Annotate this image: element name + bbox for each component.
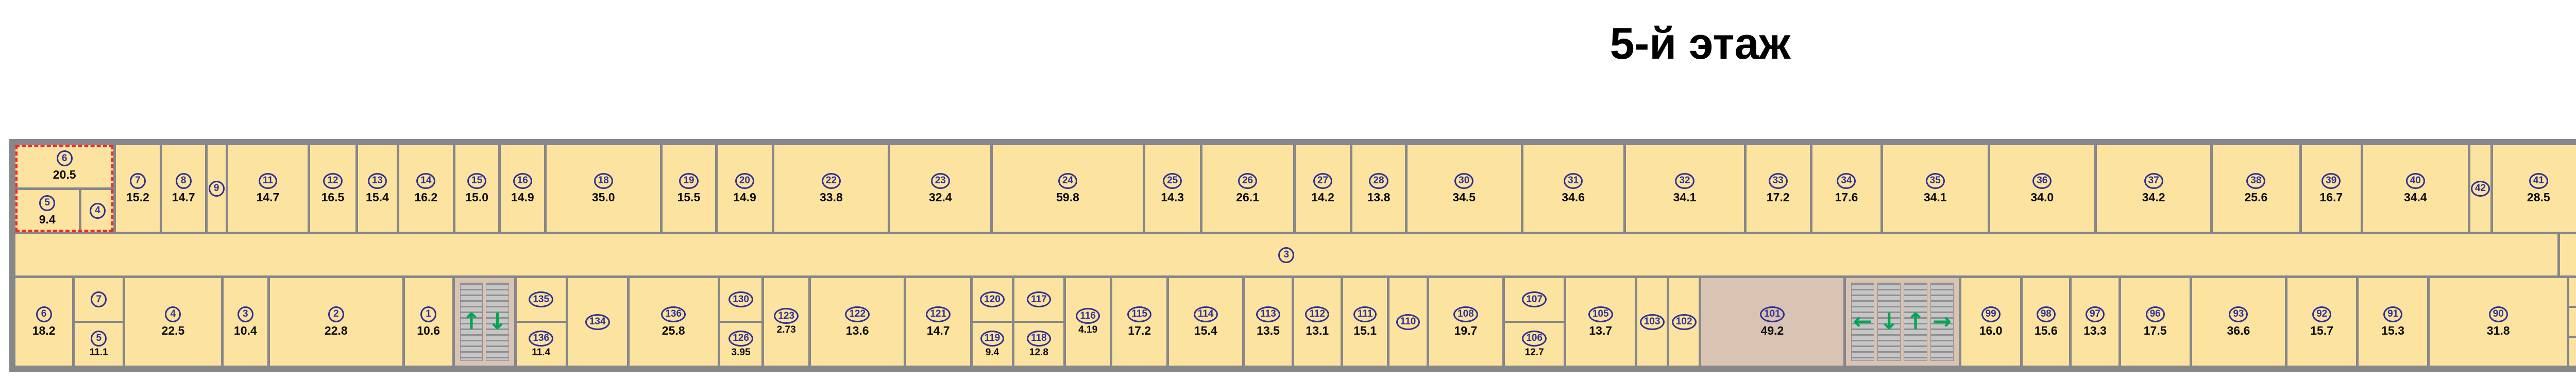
room-118: 11812.8 <box>1014 323 1063 366</box>
room-area: 11.4 <box>532 347 550 358</box>
room-number-circle: 91 <box>2383 306 2402 322</box>
room-number-circle: 15 <box>467 173 486 189</box>
stair-arrow-down-icon: ↓ <box>1879 310 1899 333</box>
room-136: 13625.8 <box>630 278 718 366</box>
room-88: 88 <box>2569 308 2576 336</box>
room-area: 13.6 <box>846 324 869 338</box>
room-number-circle: 98 <box>2037 306 2056 322</box>
apartment-row: 620.5 <box>15 145 113 187</box>
room-31: 3134.6 <box>1523 145 1623 232</box>
stair-arrow-right-icon: → <box>1933 310 1952 333</box>
room-number-circle: 27 <box>1313 173 1332 189</box>
room-area: 14.9 <box>733 191 756 204</box>
room-number-circle: 107 <box>1522 291 1547 307</box>
room-121: 12114.7 <box>906 278 970 366</box>
room-number-circle: 23 <box>931 173 950 189</box>
room-34: 3417.6 <box>1812 145 1880 232</box>
room-area: 34.4 <box>2404 191 2427 204</box>
room-97: 9713.3 <box>2072 278 2118 366</box>
room-area: 13.7 <box>1589 324 1612 338</box>
room-25: 2514.3 <box>1145 145 1200 232</box>
room-number-circle: 136 <box>529 331 553 347</box>
room-block: 13513611.4 <box>517 278 566 366</box>
room-6: 618.2 <box>15 278 72 366</box>
room-40: 4034.4 <box>2363 145 2468 232</box>
room-39: 3916.7 <box>2302 145 2361 232</box>
room-15: 1515.0 <box>455 145 499 232</box>
room-30: 3034.5 <box>1408 145 1521 232</box>
room-number-circle: 4 <box>90 203 106 219</box>
room-3: 310.4 <box>224 278 268 366</box>
room-area: 32.4 <box>929 191 952 204</box>
corridor-band: 322.26813644.7132121.75218.08634.1767516… <box>15 234 2576 275</box>
room-area: 36.6 <box>2227 324 2250 338</box>
room-23: 2332.4 <box>890 145 990 232</box>
room-number-circle: 12 <box>323 173 342 189</box>
room-area: 10.4 <box>234 324 257 338</box>
room-block: 1301263.95 <box>720 278 762 366</box>
room-22: 2233.8 <box>774 145 888 232</box>
room-number-circle: 24 <box>1058 173 1077 189</box>
room-area: 12.7 <box>1525 347 1544 358</box>
room-number-circle: 126 <box>728 331 753 347</box>
room-number-circle: 28 <box>1369 173 1388 189</box>
room-area: 25.6 <box>2245 191 2268 204</box>
room-area: 4.19 <box>1078 324 1097 336</box>
room-number-circle: 22 <box>822 173 841 189</box>
room-area: 13.3 <box>2083 324 2107 338</box>
room-91: 9115.3 <box>2359 278 2427 366</box>
room-113: 11313.5 <box>1245 278 1291 366</box>
room-area: 9.4 <box>39 213 56 227</box>
room-area: 18.2 <box>32 324 56 338</box>
room-4: 422.5 <box>125 278 221 366</box>
room-area: 19.7 <box>1454 324 1478 338</box>
room-92: 9215.7 <box>2287 278 2356 366</box>
room-102: 102 <box>1669 278 1699 366</box>
room-area: 16.7 <box>2319 191 2343 204</box>
room-19: 1915.5 <box>663 145 715 232</box>
room-area: 34.0 <box>2030 191 2054 204</box>
room-90: 9031.8 <box>2430 278 2567 366</box>
room-number-circle: 26 <box>1238 173 1257 189</box>
room-area: 34.6 <box>1562 191 1585 204</box>
room-number-circle: 121 <box>926 306 951 322</box>
room-number-circle: 102 <box>1672 314 1697 330</box>
room-112: 11213.1 <box>1294 278 1341 366</box>
room-number-circle: 96 <box>2146 306 2165 322</box>
room-24: 2459.8 <box>993 145 1143 232</box>
room-7: 7 <box>75 278 123 321</box>
room-14: 1416.2 <box>399 145 453 232</box>
room-35: 3534.1 <box>1883 145 1988 232</box>
room-block: 11711812.8 <box>1014 278 1063 366</box>
room-number-circle: 101 <box>1760 306 1785 322</box>
room-area: 49.2 <box>1761 324 1784 338</box>
room-number-circle: 136 <box>661 306 686 322</box>
room-114: 11415.4 <box>1169 278 1243 366</box>
page-title: 5-й этаж <box>1610 19 1791 70</box>
room-block: 898887 <box>2569 278 2576 366</box>
room-3: 3 <box>15 234 2557 275</box>
room-block: 10710612.7 <box>1505 278 1564 366</box>
room-number-circle: 31 <box>1564 173 1583 189</box>
room-area: 25.8 <box>662 324 685 338</box>
room-126: 1263.95 <box>720 323 762 366</box>
room-area: 10.6 <box>417 324 440 338</box>
room-area: 12.8 <box>1029 347 1048 358</box>
room-number-circle: 2 <box>328 306 344 322</box>
room-number-circle: 1 <box>420 306 436 322</box>
room-area: 17.6 <box>1835 191 1858 204</box>
room-number-circle: 115 <box>1127 306 1151 322</box>
stair-flight: ← <box>1851 283 1874 361</box>
room-number-circle: 119 <box>980 331 1005 347</box>
room-105: 10513.7 <box>1566 278 1635 366</box>
room-area: 15.1 <box>1353 324 1377 338</box>
top-rooms-band: 620.559.44715.2814.791114.71216.51315.41… <box>15 145 2576 232</box>
room-area: 14.9 <box>511 191 534 204</box>
room-108: 10819.7 <box>1429 278 1503 366</box>
room-number-circle: 7 <box>91 291 107 307</box>
room-number-circle: 30 <box>1454 173 1473 189</box>
room-130: 130 <box>720 278 762 321</box>
room-4: 4 <box>81 190 113 232</box>
room-area: 35.0 <box>592 191 615 204</box>
room-number-circle: 42 <box>2471 181 2490 197</box>
room-number-circle: 118 <box>1027 331 1051 347</box>
room-number-circle: 105 <box>1588 306 1613 322</box>
room-number-circle: 120 <box>980 291 1005 307</box>
room-number-circle: 112 <box>1305 306 1329 322</box>
room-2: 22.26 <box>2560 234 2576 275</box>
room-area: 15.6 <box>2035 324 2058 338</box>
room-area: 14.2 <box>1311 191 1334 204</box>
room-9: 9 <box>208 145 226 232</box>
room-6: 620.5 <box>15 145 113 187</box>
room-number-circle: 3 <box>1278 247 1294 263</box>
room-area: 22.5 <box>162 324 185 338</box>
room-area: 15.7 <box>2310 324 2333 338</box>
room-number-circle: 122 <box>845 306 870 322</box>
room-103: 103 <box>1637 278 1667 366</box>
room-28: 2813.8 <box>1352 145 1404 232</box>
room-area: 9.4 <box>986 347 999 358</box>
room-96: 9617.5 <box>2121 278 2190 366</box>
room-38: 3825.6 <box>2213 145 2299 232</box>
room-number-circle: 99 <box>1981 306 2001 322</box>
room-area: 17.5 <box>2144 324 2167 338</box>
room-number-circle: 25 <box>1163 173 1182 189</box>
room-101: 10149.2 <box>1701 278 1843 366</box>
room-number-circle: 97 <box>2086 306 2105 322</box>
floor-plan-page: 5-й этаж 620.559.44715.2814.791114.71216… <box>0 0 2576 380</box>
room-area: 14.3 <box>1161 191 1184 204</box>
room-number-circle: 14 <box>416 173 435 189</box>
room-33: 3317.2 <box>1747 145 1810 232</box>
stair-arrow-up-icon: ↑ <box>462 310 481 333</box>
room-number-circle: 123 <box>774 308 799 324</box>
room-number-circle: 5 <box>91 331 107 347</box>
apartment-row: 59.44 <box>15 190 113 232</box>
stair-flight: ↑ <box>460 283 483 361</box>
room-area: 16.5 <box>321 191 345 204</box>
room-number-circle: 7 <box>130 173 146 189</box>
room-area: 14.7 <box>172 191 195 204</box>
room-number-circle: 3 <box>238 306 253 322</box>
room-number-circle: 114 <box>1194 306 1218 322</box>
room-area: 28.5 <box>2527 191 2550 204</box>
room-number-circle: 111 <box>1353 306 1377 322</box>
room-number-circle: 117 <box>1027 291 1051 307</box>
room-111: 11115.1 <box>1343 278 1387 366</box>
staircase: ←↓↑→ <box>1846 278 1959 366</box>
room-5: 59.4 <box>15 190 79 232</box>
room-block: 620.559.44 <box>15 145 113 232</box>
room-122: 12213.6 <box>811 278 904 366</box>
room-120: 120 <box>973 278 1012 321</box>
room-89: 89 <box>2569 278 2576 306</box>
room-116: 1164.19 <box>1066 278 1110 366</box>
room-18: 1835.0 <box>547 145 660 232</box>
room-number-circle: 16 <box>513 173 532 189</box>
room-area: 15.0 <box>465 191 488 204</box>
stair-arrow-left-icon: ← <box>1853 310 1872 333</box>
room-number-circle: 34 <box>1837 173 1856 189</box>
room-number-circle: 38 <box>2246 173 2265 189</box>
room-37: 3734.2 <box>2097 145 2210 232</box>
room-number-circle: 19 <box>679 173 698 189</box>
room-block: 7511.1 <box>75 278 123 366</box>
room-area: 13.1 <box>1306 324 1329 338</box>
room-36: 3634.0 <box>1990 145 2095 232</box>
room-number-circle: 116 <box>1076 308 1100 324</box>
room-area: 15.4 <box>366 191 389 204</box>
room-number-circle: 5 <box>39 195 55 211</box>
room-area: 13.5 <box>1257 324 1280 338</box>
room-area: 15.3 <box>2381 324 2404 338</box>
room-119: 1199.4 <box>973 323 1012 366</box>
room-number-circle: 11 <box>259 173 277 189</box>
room-number-circle: 41 <box>2529 173 2548 189</box>
room-area: 16.0 <box>1979 324 2003 338</box>
room-2: 222.8 <box>270 278 402 366</box>
room-27: 2714.2 <box>1296 145 1350 232</box>
room-93: 9336.6 <box>2192 278 2285 366</box>
room-number-circle: 130 <box>728 291 753 307</box>
staircase: ↑↓ <box>455 278 514 366</box>
room-16: 1614.9 <box>501 145 544 232</box>
room-number-circle: 8 <box>176 173 192 189</box>
room-area: 59.8 <box>1056 191 1079 204</box>
room-number-circle: 110 <box>1396 314 1420 330</box>
room-area: 14.7 <box>256 191 279 204</box>
stair-arrow-down-icon: ↓ <box>488 310 507 333</box>
room-area: 2.73 <box>777 324 796 336</box>
room-number-circle: 113 <box>1256 306 1280 322</box>
room-117: 117 <box>1014 278 1063 321</box>
room-area: 34.5 <box>1452 191 1476 204</box>
room-98: 9815.6 <box>2023 278 2069 366</box>
room-number-circle: 18 <box>594 173 613 189</box>
room-20: 2014.9 <box>718 145 772 232</box>
floor-plan: 620.559.44715.2814.791114.71216.51315.41… <box>9 139 2576 372</box>
room-area: 34.2 <box>2142 191 2165 204</box>
room-number-circle: 37 <box>2144 173 2163 189</box>
room-99: 9916.0 <box>1961 278 2020 366</box>
room-number-circle: 9 <box>209 181 225 197</box>
room-number-circle: 90 <box>2489 306 2508 322</box>
room-123: 1232.73 <box>764 278 808 366</box>
room-area: 15.4 <box>1194 324 1217 338</box>
room-area: 15.2 <box>126 191 149 204</box>
room-7: 715.2 <box>116 145 160 232</box>
stair-flight: → <box>1930 283 1954 361</box>
room-area: 22.8 <box>325 324 348 338</box>
room-area: 17.2 <box>1128 324 1151 338</box>
room-area: 17.2 <box>1767 191 1790 204</box>
room-area: 11.1 <box>90 347 108 358</box>
room-number-circle: 6 <box>57 150 73 166</box>
stair-flight: ↑ <box>1904 283 1927 361</box>
room-11: 1114.7 <box>228 145 308 232</box>
room-8: 814.7 <box>162 145 205 232</box>
room-32: 3234.1 <box>1626 145 1744 232</box>
room-number-circle: 13 <box>368 173 387 189</box>
room-107: 107 <box>1505 278 1564 321</box>
room-5: 511.1 <box>75 323 123 366</box>
room-106: 10612.7 <box>1505 323 1564 366</box>
bottom-rooms-band: 618.27511.1422.5310.4222.8110.6↑↓1351361… <box>15 278 2576 366</box>
room-41: 4128.5 <box>2493 145 2576 232</box>
room-area: 33.8 <box>820 191 843 204</box>
room-number-circle: 33 <box>1769 173 1788 189</box>
stair-flight: ↓ <box>1877 283 1901 361</box>
room-number-circle: 106 <box>1522 331 1547 347</box>
room-number-circle: 40 <box>2406 173 2425 189</box>
room-1: 110.6 <box>405 278 452 366</box>
room-number-circle: 92 <box>2312 306 2331 322</box>
room-area: 26.1 <box>1236 191 1259 204</box>
room-26: 2626.1 <box>1202 145 1293 232</box>
room-area: 14.7 <box>927 324 950 338</box>
room-area: 20.5 <box>53 168 76 182</box>
room-area: 3.95 <box>732 347 751 358</box>
room-number-circle: 6 <box>36 306 52 322</box>
room-number-circle: 39 <box>2321 173 2341 189</box>
room-134: 134 <box>568 278 627 366</box>
room-area: 31.8 <box>2487 324 2510 338</box>
room-87: 87 <box>2569 338 2576 366</box>
room-number-circle: 135 <box>529 291 553 307</box>
room-number-circle: 108 <box>1453 306 1478 322</box>
room-block: 1201199.4 <box>973 278 1012 366</box>
room-area: 13.8 <box>1367 191 1391 204</box>
room-number-circle: 93 <box>2229 306 2248 322</box>
stair-flight: ↓ <box>486 283 509 361</box>
room-115: 11517.2 <box>1112 278 1166 366</box>
room-42: 42 <box>2470 145 2491 232</box>
room-number-circle: 20 <box>735 173 754 189</box>
room-area: 15.5 <box>677 191 701 204</box>
room-number-circle: 32 <box>1675 173 1694 189</box>
room-number-circle: 36 <box>2032 173 2052 189</box>
room-135: 135 <box>517 278 566 321</box>
stair-arrow-up-icon: ↑ <box>1906 310 1925 333</box>
room-number-circle: 134 <box>585 314 610 330</box>
room-13: 1315.4 <box>358 145 397 232</box>
room-12: 1216.5 <box>310 145 355 232</box>
room-area: 34.1 <box>1924 191 1947 204</box>
room-area: 34.1 <box>1673 191 1697 204</box>
room-number-circle: 35 <box>1926 173 1945 189</box>
room-area: 16.2 <box>414 191 437 204</box>
room-number-circle: 4 <box>165 306 181 322</box>
room-110: 110 <box>1389 278 1426 366</box>
room-number-circle: 103 <box>1640 314 1665 330</box>
room-136: 13611.4 <box>517 323 566 366</box>
